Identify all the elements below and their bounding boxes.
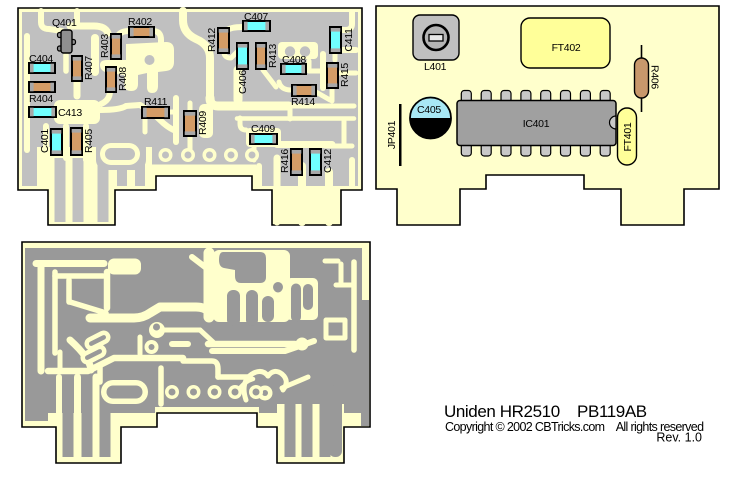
svg-text:C401: C401 xyxy=(39,129,51,153)
svg-text:R416: R416 xyxy=(279,149,291,173)
svg-text:Q401: Q401 xyxy=(52,17,77,29)
svg-text:C413: C413 xyxy=(58,107,82,119)
svg-text:R405: R405 xyxy=(83,129,95,153)
svg-text:FT402: FT402 xyxy=(552,42,581,54)
svg-text:C407: C407 xyxy=(244,11,268,23)
svg-text:C409: C409 xyxy=(251,123,275,135)
svg-text:C404: C404 xyxy=(29,53,53,65)
svg-text:FT401: FT401 xyxy=(622,122,634,151)
svg-text:IC401: IC401 xyxy=(523,118,550,130)
svg-text:C411: C411 xyxy=(343,28,355,52)
svg-text:R403: R403 xyxy=(99,34,111,58)
svg-text:C405: C405 xyxy=(417,104,441,116)
svg-text:R415: R415 xyxy=(339,63,351,87)
svg-text:R406: R406 xyxy=(649,65,661,89)
svg-text:R404: R404 xyxy=(29,93,53,105)
svg-text:C406: C406 xyxy=(237,70,249,94)
svg-text:C412: C412 xyxy=(322,149,334,173)
svg-text:R408: R408 xyxy=(117,67,129,91)
svg-text:R409: R409 xyxy=(197,111,209,135)
svg-text:C408: C408 xyxy=(282,54,306,66)
svg-text:L401: L401 xyxy=(424,61,447,73)
svg-text:Rev. 1.0: Rev. 1.0 xyxy=(656,431,702,445)
svg-text:R407: R407 xyxy=(83,56,95,80)
svg-text:R414: R414 xyxy=(291,96,315,108)
svg-text:R412: R412 xyxy=(206,28,218,52)
svg-text:R411: R411 xyxy=(144,96,168,108)
svg-text:JP401: JP401 xyxy=(386,120,398,149)
svg-text:R402: R402 xyxy=(128,16,152,28)
svg-text:Uniden HR2510 PB119AB: Uniden HR2510 PB119AB xyxy=(444,402,647,421)
svg-text:R413: R413 xyxy=(267,44,279,68)
